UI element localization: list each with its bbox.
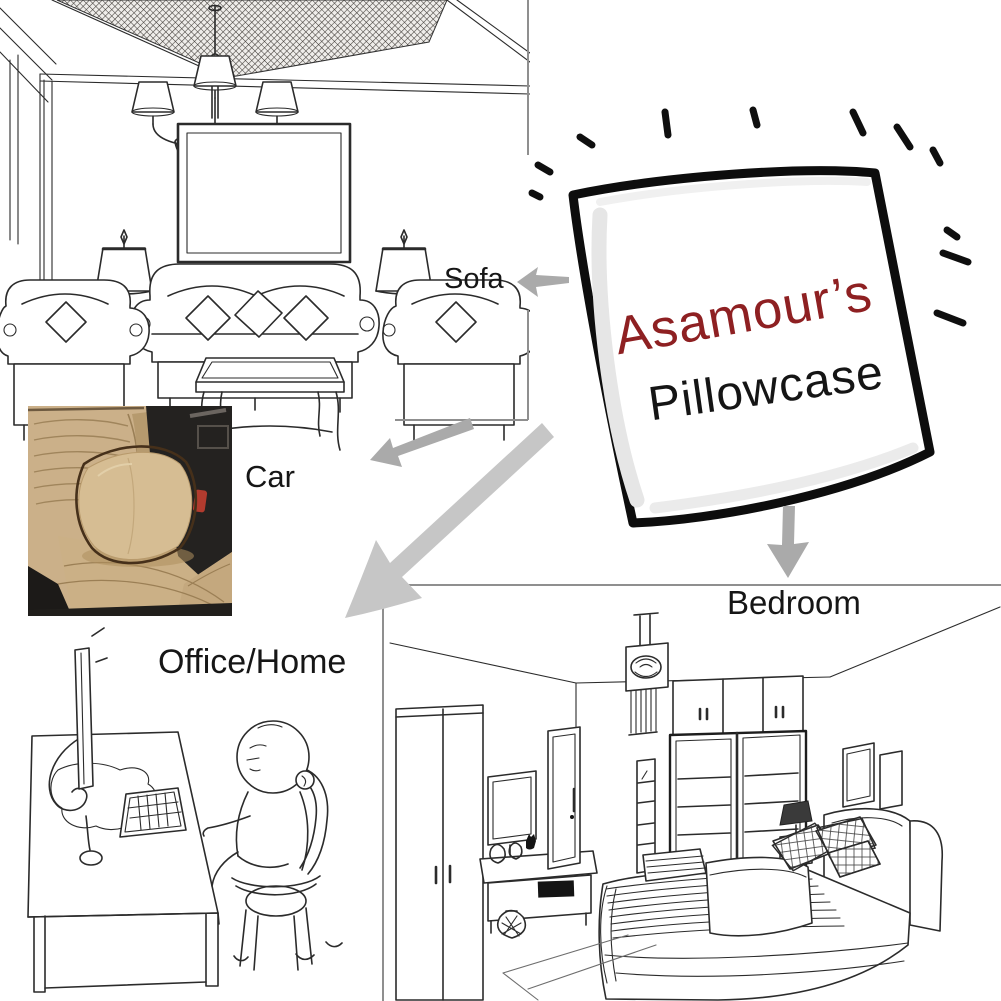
office-home-label: Office/Home bbox=[158, 643, 346, 682]
car-seat-photo bbox=[28, 406, 232, 616]
sofa-label: Sofa bbox=[444, 263, 504, 296]
office-chair bbox=[232, 768, 328, 970]
bedroom-illustration bbox=[388, 583, 1001, 1001]
bedroom-arrow bbox=[757, 506, 819, 582]
wall-picture-frame bbox=[178, 124, 350, 262]
beige-pillow bbox=[76, 446, 195, 563]
living-room-illustration bbox=[0, 0, 530, 470]
ceiling-texture bbox=[52, 0, 530, 79]
sofa-arrow bbox=[514, 266, 574, 298]
office-home-arrow bbox=[332, 422, 562, 634]
product-usage-collage: Asamour’s Pillowcase Sofa Car Office/Hom… bbox=[0, 0, 1001, 1001]
keyboard bbox=[120, 788, 186, 837]
computer-mouse bbox=[80, 851, 102, 865]
motion-dashes bbox=[92, 628, 107, 662]
bedroom-wall-frames bbox=[843, 743, 902, 809]
ground-squiggles bbox=[234, 942, 342, 961]
bedroom-door bbox=[548, 727, 580, 869]
sofa-three-seat bbox=[131, 264, 379, 412]
bedroom-label: Bedroom bbox=[727, 584, 861, 622]
bedroom-vent-unit bbox=[626, 613, 668, 735]
computer-monitor bbox=[75, 648, 93, 789]
pillowcase-graphic: Asamour’s Pillowcase bbox=[505, 80, 1001, 550]
bedroom-overhead-cabinets bbox=[673, 676, 803, 735]
car-label: Car bbox=[245, 459, 295, 495]
bedroom-wardrobe bbox=[396, 705, 483, 1000]
seated-person bbox=[203, 721, 314, 886]
